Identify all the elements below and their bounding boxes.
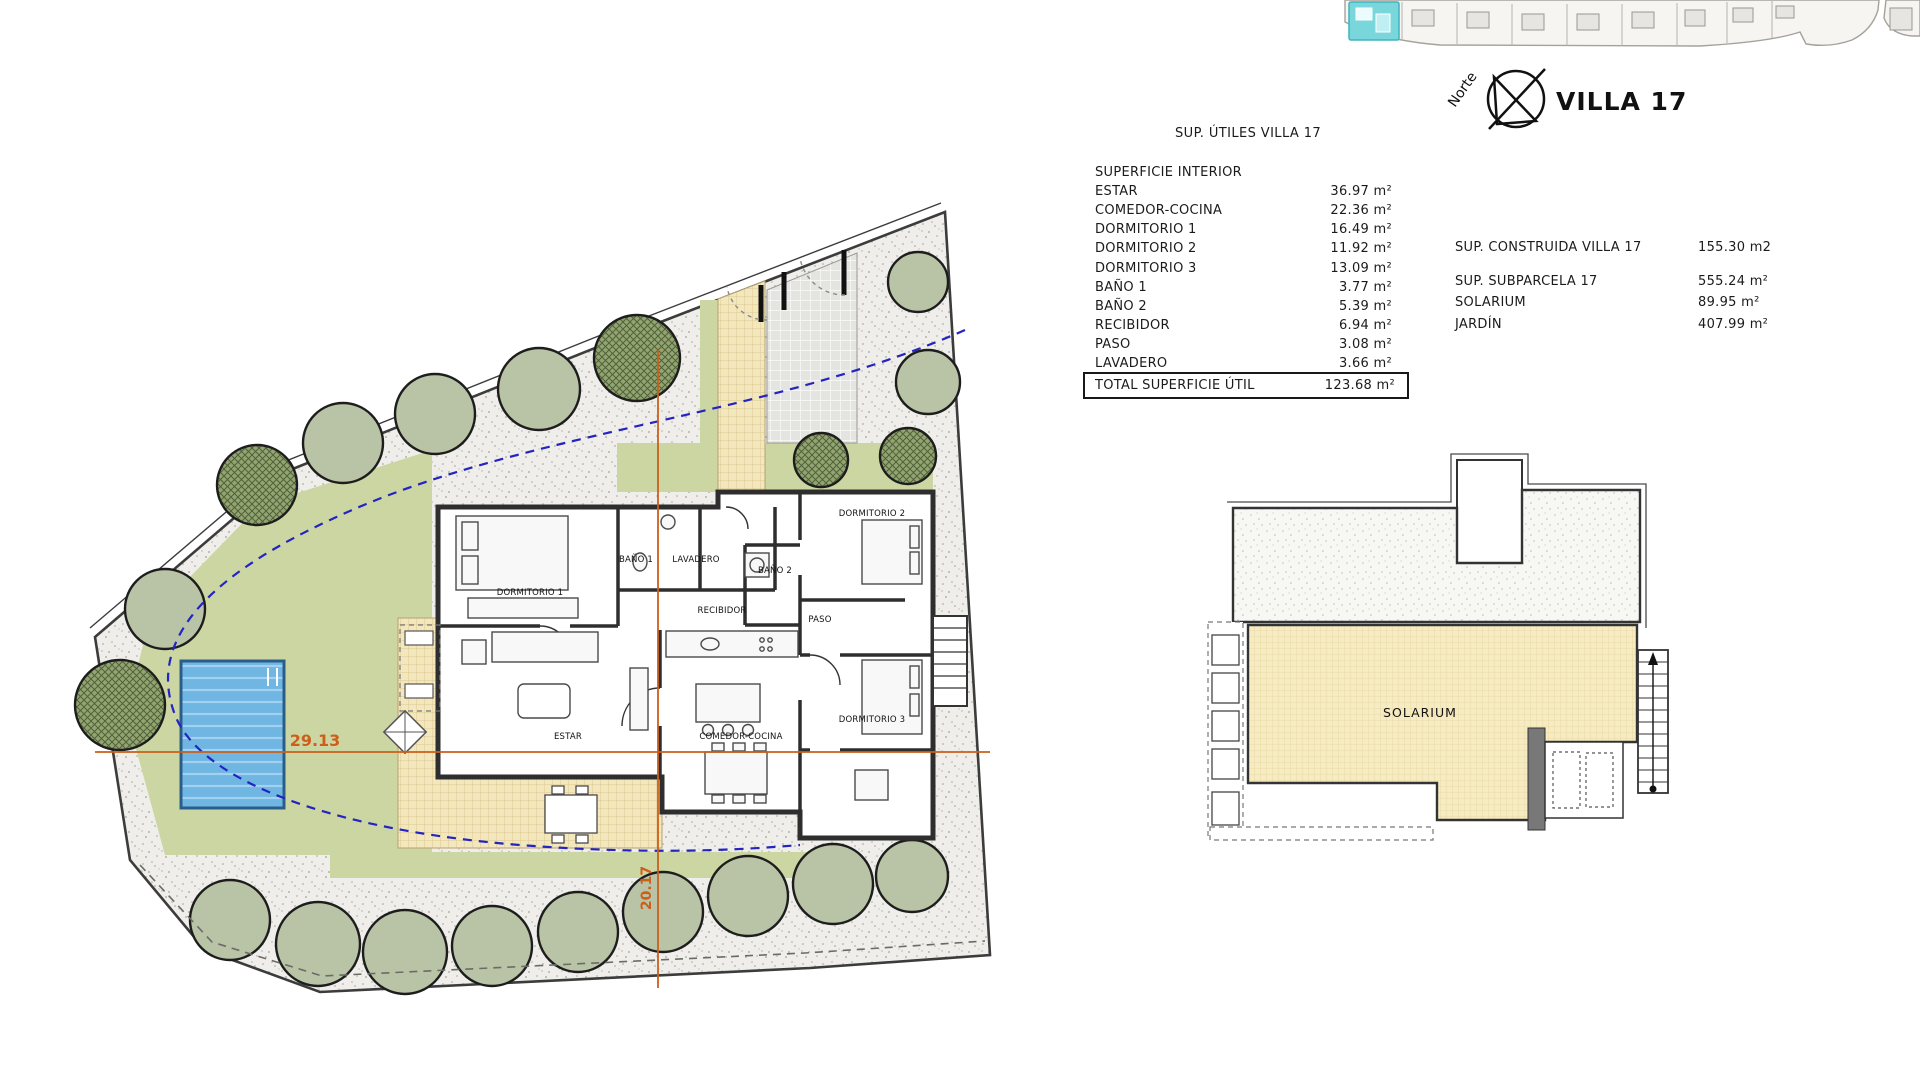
room-area: 13.09 m²: [1330, 261, 1392, 276]
room-name: LAVADERO: [1095, 356, 1167, 371]
table-row: LAVADERO3.66 m²: [1095, 354, 1392, 373]
room-label-recibidor: RECIBIDOR: [698, 606, 747, 616]
north-compass-icon: [1488, 69, 1545, 129]
plan-canvas: 29.13 20.17 DORMITORIO 1 BAÑO 1 LAVADERO…: [0, 0, 1920, 1080]
room-area: 5.39 m²: [1339, 299, 1392, 314]
room-area: 11.92 m²: [1330, 241, 1392, 256]
roof-stairs: [1638, 650, 1668, 793]
room-area: 6.94 m²: [1339, 318, 1392, 333]
room-name: BAÑO 2: [1095, 299, 1147, 314]
room-label-comedor: COMEDOR-COCINA: [699, 732, 782, 742]
table-row: BAÑO 13.77 m²: [1095, 278, 1392, 297]
table-row: DORMITORIO 211.92 m²: [1095, 239, 1392, 258]
room-label-lavadero: LAVADERO: [672, 555, 720, 565]
room-area: 3.08 m²: [1339, 337, 1392, 352]
table-row: ESTAR36.97 m²: [1095, 182, 1392, 201]
table-row: RECIBIDOR6.94 m²: [1095, 316, 1392, 335]
stair-bulkhead: [1457, 460, 1522, 563]
room-name: DORMITORIO 1: [1095, 222, 1197, 237]
table-row: PASO3.08 m²: [1095, 335, 1392, 354]
dimension-depth-label: 20.17: [639, 866, 655, 910]
table-row: DORMITORIO 313.09 m²: [1095, 258, 1392, 277]
summary-row: SUP. CONSTRUIDA VILLA 17 155.30 m2: [1455, 237, 1800, 259]
room-name: DORMITORIO 3: [1095, 261, 1197, 276]
total-area-box: TOTAL SUPERFICIE ÚTIL 123.68 m²: [1083, 372, 1409, 399]
summary-row: SOLARIUM 89.95 m²: [1455, 292, 1800, 314]
roof-gravel: [1233, 490, 1640, 622]
room-label-paso: PASO: [808, 615, 831, 625]
room-label-dormitorio3: DORMITORIO 3: [839, 715, 905, 725]
roof-skylights: [1545, 742, 1623, 818]
summary-row: JARDÍN 407.99 m²: [1455, 314, 1800, 336]
house-stairs: [933, 616, 967, 706]
roof-wall-bar: [1528, 728, 1545, 830]
pool: [181, 661, 284, 808]
villa-title: VILLA 17: [1556, 87, 1687, 116]
room-label-bano2: BAÑO 2: [758, 565, 792, 576]
table-row: BAÑO 25.39 m²: [1095, 297, 1392, 316]
areas-table-title: SUP. ÚTILES VILLA 17: [1175, 126, 1321, 141]
room-label-dormitorio1: DORMITORIO 1: [497, 588, 563, 598]
room-area: 16.49 m²: [1330, 222, 1392, 237]
room-area: 3.66 m²: [1339, 356, 1392, 371]
room-name: COMEDOR-COCINA: [1095, 203, 1222, 218]
room-name: PASO: [1095, 337, 1131, 352]
summary-row: SUP. SUBPARCELA 17 555.24 m²: [1455, 271, 1800, 293]
total-label: TOTAL SUPERFICIE ÚTIL: [1095, 378, 1255, 393]
table-row: COMEDOR-COCINA22.36 m²: [1095, 201, 1392, 220]
room-area: 36.97 m²: [1330, 184, 1392, 199]
room-label-bano1: BAÑO 1: [619, 554, 653, 565]
table-section-header: SUPERFICIE INTERIOR: [1095, 163, 1392, 182]
room-name: DORMITORIO 2: [1095, 241, 1197, 256]
room-name: BAÑO 1: [1095, 280, 1147, 295]
roof-plan: SOLARIUM: [1208, 454, 1668, 840]
room-label-dormitorio2: DORMITORIO 2: [839, 509, 905, 519]
solarium-label: SOLARIUM: [1383, 705, 1457, 720]
room-area: 3.77 m²: [1339, 280, 1392, 295]
room-area: 22.36 m²: [1330, 203, 1392, 218]
room-label-estar: ESTAR: [554, 732, 582, 742]
summary-block: SUP. CONSTRUIDA VILLA 17 155.30 m2 SUP. …: [1455, 237, 1800, 335]
site-plan: 29.13 20.17 DORMITORIO 1 BAÑO 1 LAVADERO…: [75, 203, 990, 994]
page: { "header": { "villa_title": "VILLA 17",…: [0, 0, 1920, 1080]
spacer: [1455, 259, 1800, 271]
areas-table: SUPERFICIE INTERIOR ESTAR36.97 m² COMEDO…: [1095, 163, 1392, 373]
table-row: DORMITORIO 116.49 m²: [1095, 220, 1392, 239]
total-value: 123.68 m²: [1325, 378, 1395, 393]
room-name: ESTAR: [1095, 184, 1138, 199]
entry-path: [718, 281, 765, 507]
development-overview-strip: [1345, 0, 1920, 46]
room-name: RECIBIDOR: [1095, 318, 1170, 333]
dimension-width-label: 29.13: [290, 731, 341, 750]
north-label: Norte: [1445, 69, 1480, 110]
